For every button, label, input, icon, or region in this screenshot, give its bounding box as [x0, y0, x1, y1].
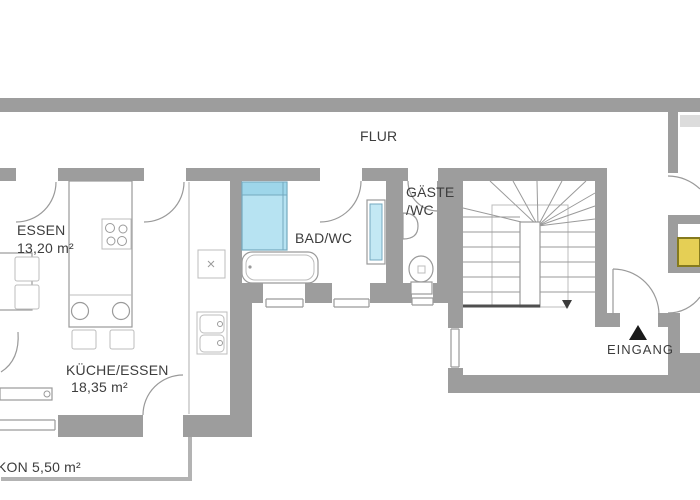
essen-area-label: 13,20 m² [17, 240, 74, 256]
entrance-door-arc [613, 269, 659, 315]
eingang-label: EINGANG [607, 342, 674, 357]
stair-direction-arrow-icon [562, 300, 572, 309]
right-room-fixtures [678, 115, 700, 266]
window-symbol [412, 298, 433, 305]
chair [15, 257, 39, 281]
wall-segment [183, 415, 252, 437]
window-symbol [0, 420, 55, 430]
gaeste-wc-label: GÄSTE [406, 184, 454, 200]
door-arc [144, 182, 184, 222]
floor-plan-drawing: FLUR ESSEN 13,20 m² BAD/WC GÄSTE /WC KÜC… [0, 0, 700, 500]
wall-segment [433, 283, 463, 303]
gaeste-wc-label2: /WC [406, 202, 434, 218]
wall-segment [668, 98, 678, 173]
shelf [680, 115, 700, 127]
toilet-flush [418, 266, 425, 273]
wall-segment [230, 283, 263, 303]
wall-segment [0, 168, 16, 181]
entrance-arrow-icon [629, 325, 647, 340]
floor-plan: FLUR ESSEN 13,20 m² BAD/WC GÄSTE /WC KÜC… [0, 0, 700, 500]
door-arc [16, 182, 56, 222]
guest-wc-fixtures [403, 213, 433, 294]
wall-segment [438, 168, 607, 181]
kueche-label: KÜCHE/ESSEN [66, 361, 169, 378]
window-symbol [451, 329, 459, 367]
wall-segment [448, 375, 700, 393]
wall-segment [305, 283, 332, 303]
door-arc [143, 375, 183, 415]
door-arc [320, 181, 361, 222]
bathtub-faucet [248, 265, 251, 268]
furniture-yellow [678, 238, 700, 266]
cooktop [102, 219, 131, 249]
wall-segment [448, 303, 463, 328]
window-symbol [266, 299, 303, 307]
wall-segment [0, 98, 700, 112]
door-arc [668, 176, 700, 189]
door-arc [668, 297, 700, 313]
bad-wc-label: BAD/WC [295, 230, 352, 246]
island-basin [113, 303, 130, 320]
flur-label: FLUR [360, 128, 397, 144]
wall-segment [186, 168, 320, 181]
kueche-area-label: 18,35 m² [71, 379, 128, 395]
island-basin [72, 303, 89, 320]
wall-segment [58, 415, 143, 437]
bathtub [242, 252, 318, 283]
wall-segment [386, 181, 403, 283]
stair-newel [520, 222, 540, 307]
towel-radiator-inner [370, 204, 382, 260]
door-arc [1, 332, 18, 372]
staircase [463, 181, 595, 309]
wall-segment [668, 215, 678, 273]
stool [72, 330, 96, 349]
wall-segment [58, 168, 144, 181]
wall-segment [595, 313, 620, 327]
balkon-label: KON 5,50 m² [0, 459, 81, 475]
shower-header [242, 182, 287, 195]
wall-segment [370, 283, 412, 303]
stair-winders [463, 181, 595, 226]
wall-segment [595, 181, 607, 313]
chair [15, 285, 39, 309]
wall-segment [678, 215, 700, 224]
toilet-cistern [411, 282, 432, 294]
kitchen-sink-basin [200, 315, 224, 333]
window-symbol [334, 299, 369, 307]
stool [110, 330, 134, 349]
kitchen-sink-basin [200, 335, 224, 352]
wall-segment [362, 168, 408, 181]
essen-label: ESSEN [17, 222, 65, 238]
